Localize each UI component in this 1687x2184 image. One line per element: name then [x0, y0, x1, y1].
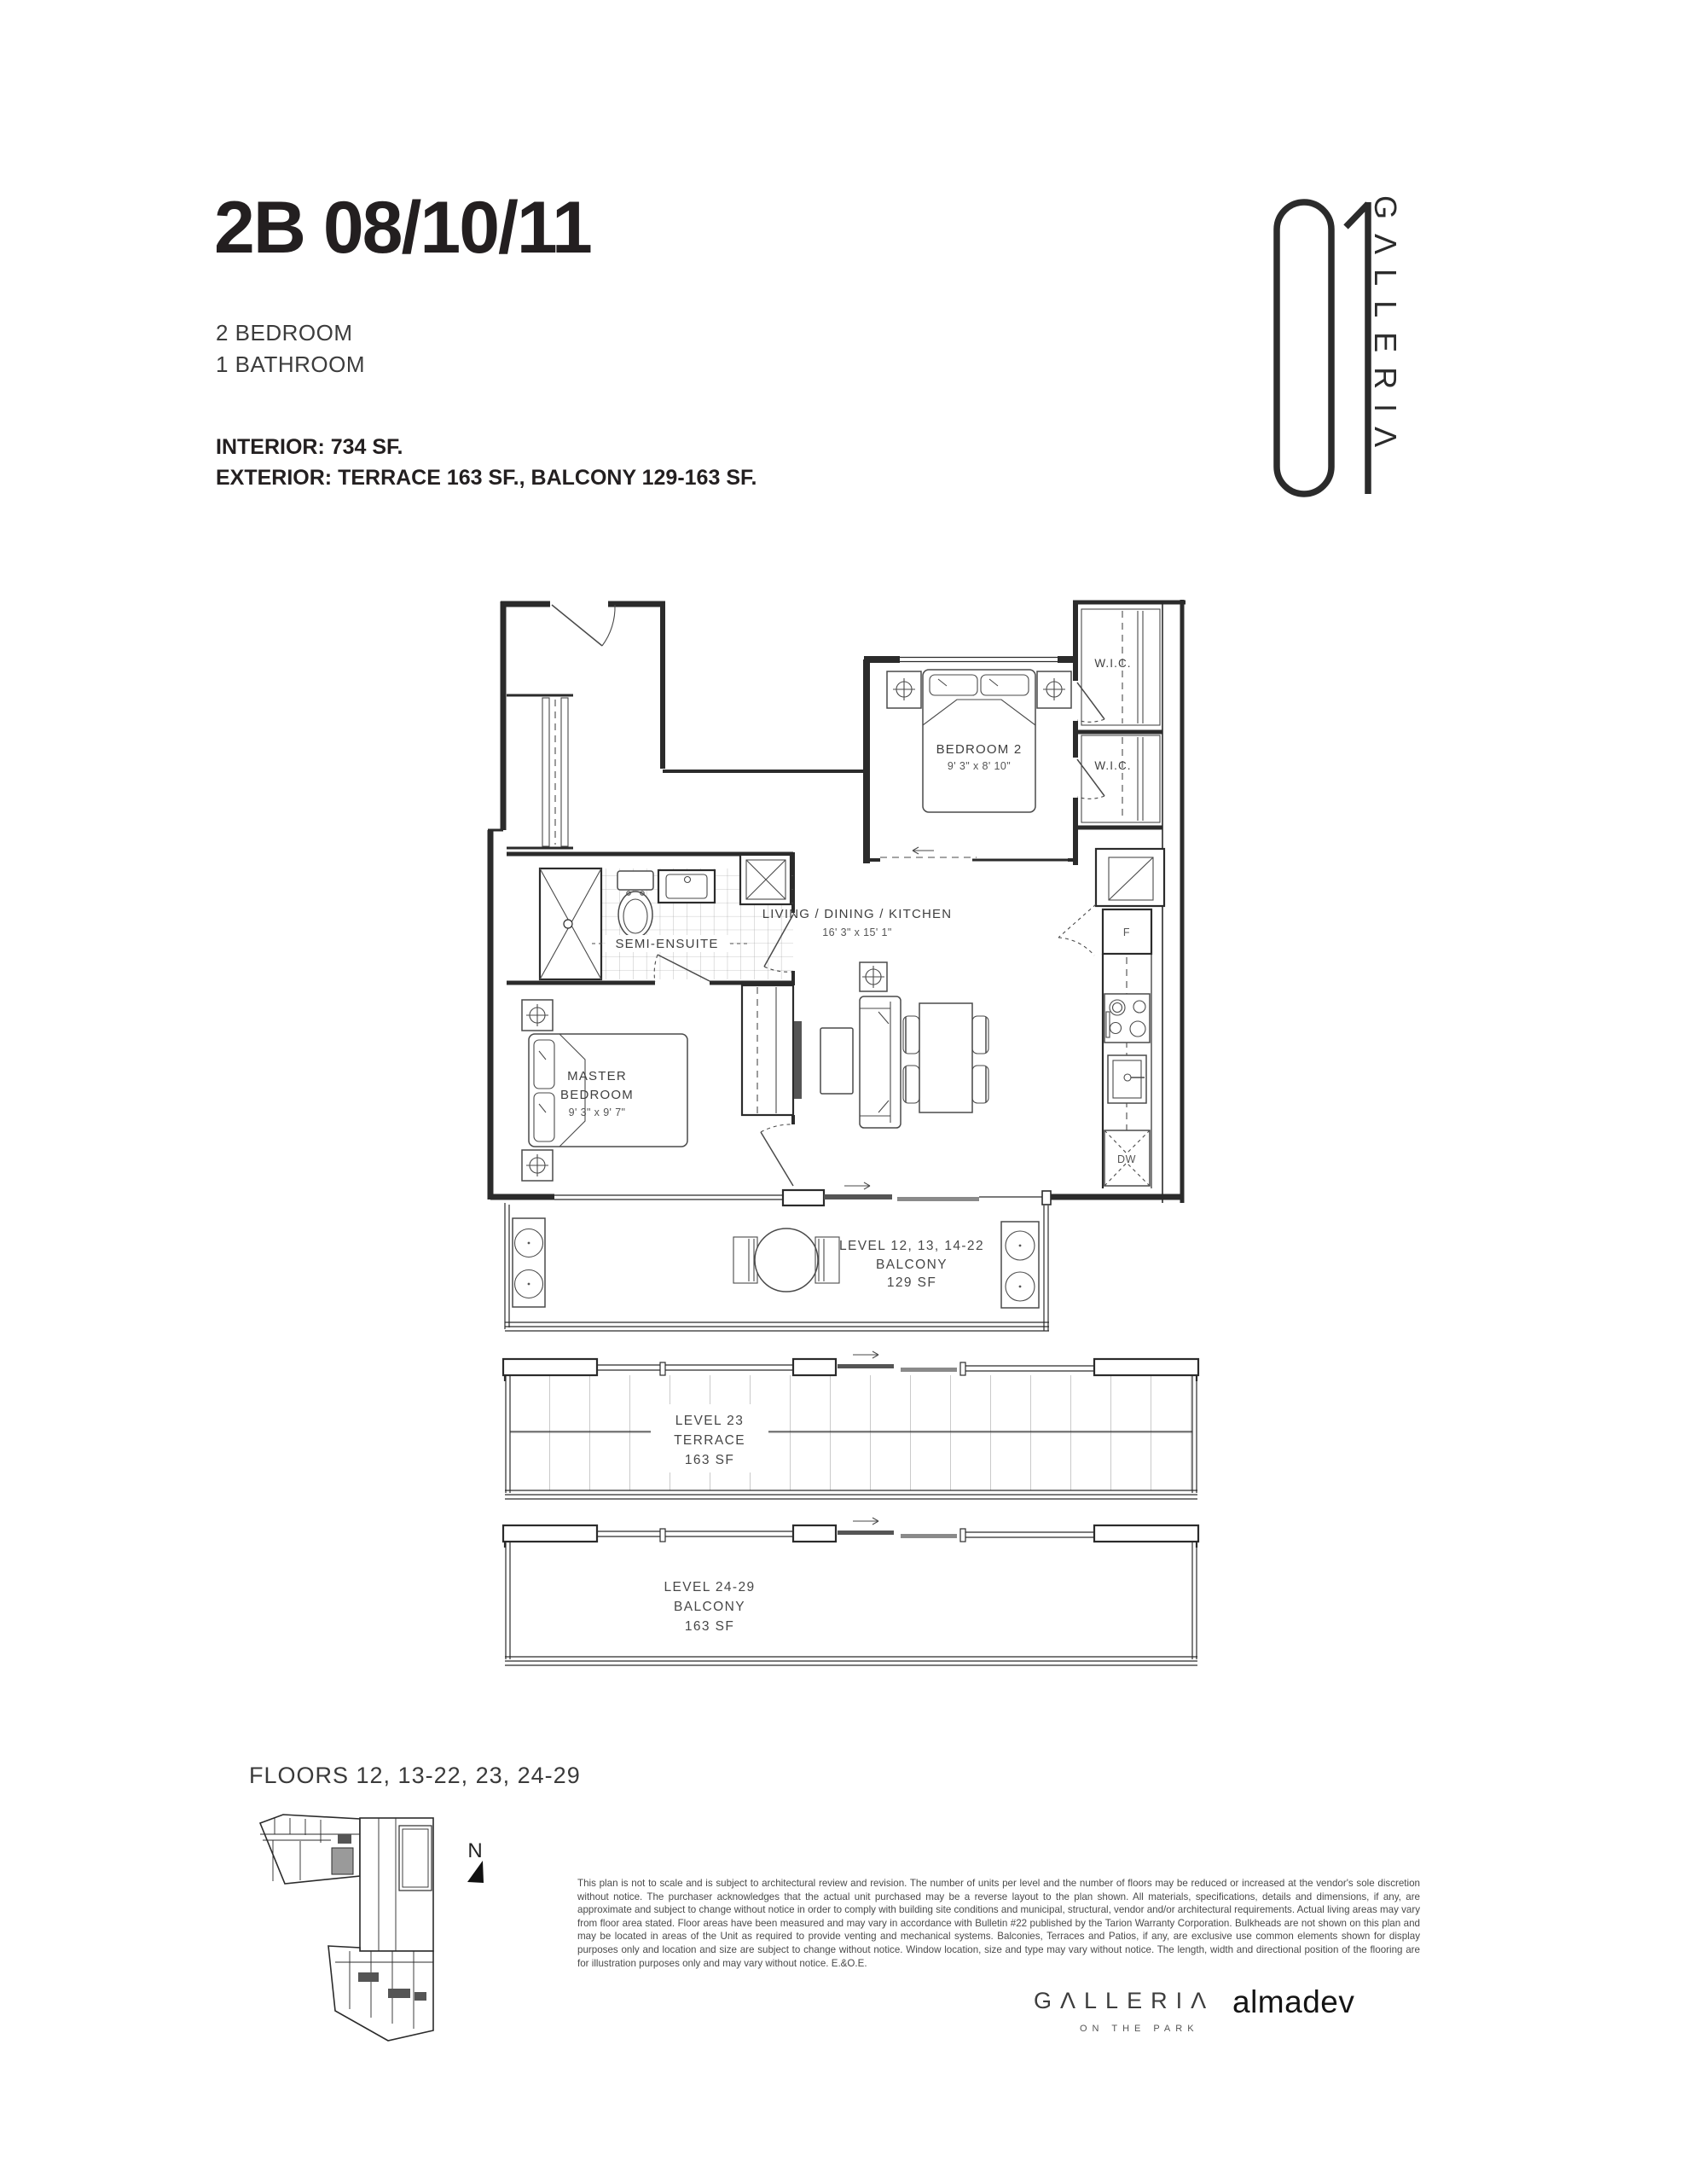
coffee-table — [820, 1028, 853, 1094]
wic-lower-label: W.I.C. — [1094, 759, 1131, 772]
bedroom2-bed — [923, 670, 1035, 812]
kitchen-sink — [1108, 1055, 1146, 1103]
south-window-wall — [490, 1182, 1184, 1205]
dining-set — [903, 1003, 988, 1112]
living-dims: 16' 3" x 15' 1" — [822, 926, 892, 938]
fridge: F — [1103, 909, 1151, 954]
bedroom2-sliding-door — [880, 847, 1068, 860]
planter-left — [513, 1218, 545, 1307]
toilet — [617, 871, 653, 938]
floors-label: FLOORS 12, 13-22, 23, 24-29 — [249, 1763, 581, 1789]
footer-galleria-logo: GΛLLERIΛ — [1034, 1988, 1215, 2014]
footer-developer-logo: almadev — [1232, 1984, 1354, 2020]
unit-summary: 2 BEDROOM 1 BATHROOM — [216, 317, 365, 380]
living-label: LIVING / DINING / KITCHEN — [762, 907, 953, 921]
bedroom-2: BEDROOM 2 9' 3" x 8' 10" — [880, 670, 1071, 860]
north-arrow: N — [467, 1839, 484, 1883]
balcony-24-29: LEVEL 24-29 BALCONY 163 SF — [503, 1518, 1198, 1665]
interior-area: INTERIOR: 734 SF. — [216, 432, 757, 462]
north-arrow-pointer — [467, 1861, 484, 1883]
door-slide-arrow — [844, 1182, 870, 1189]
balcony-12-22: LEVEL 12, 13, 14-22 BALCONY 129 SF — [505, 1203, 1049, 1331]
area-summary: INTERIOR: 734 SF. EXTERIOR: TERRACE 163 … — [216, 432, 757, 493]
entry-door — [552, 605, 615, 646]
keyplan: N — [243, 1804, 499, 2052]
tv — [794, 1021, 802, 1099]
master-wardrobe — [742, 985, 793, 1115]
floorplan: SEMI-ENSUITE — [478, 580, 1228, 1681]
keyplan-building-outline — [260, 1815, 433, 2041]
balcony-table-set — [733, 1228, 839, 1292]
walk-in-closets: W.I.C. W.I.C. — [1077, 609, 1160, 822]
master-nightstands — [522, 1000, 553, 1181]
vanity-sink — [658, 870, 715, 903]
shower — [540, 868, 601, 979]
disclaimer-text: This plan is not to scale and is subject… — [577, 1877, 1420, 1970]
semi-ensuite-label: SEMI-ENSUITE — [615, 937, 718, 951]
bedroom2-label: BEDROOM 2 — [936, 742, 1023, 757]
balcony24-label-3: 163 SF — [685, 1619, 734, 1634]
laundry-closet — [740, 855, 791, 904]
logo-digit-one — [1346, 202, 1368, 494]
bedroom2-nightstands — [887, 671, 1071, 708]
master-bedroom: MASTER BEDROOM 9' 3" x 9' 7" — [522, 985, 793, 1186]
side-table — [860, 962, 887, 991]
terrace-23: LEVEL 23 TERRACE 163 SF — [503, 1351, 1198, 1499]
kitchen: F DW — [1058, 849, 1164, 1188]
fridge-label: F — [1123, 926, 1130, 938]
master-label-1: MASTER — [567, 1069, 627, 1083]
keyplan-unit-highlight — [332, 1848, 353, 1874]
bedroom2-dims: 9' 3" x 8' 10" — [948, 760, 1011, 772]
footer-tagline: ON THE PARK — [1080, 2024, 1199, 2034]
master-door — [761, 1124, 793, 1186]
balcony24-label-2: BALCONY — [674, 1600, 745, 1614]
foyer-closet — [507, 695, 573, 848]
bedroom-count: 2 BEDROOM — [216, 317, 365, 349]
balcony12-label-3: 129 SF — [887, 1275, 936, 1290]
sofa — [860, 996, 901, 1128]
dishwasher: DW — [1104, 1130, 1150, 1186]
north-label: N — [467, 1839, 482, 1862]
exterior-area: EXTERIOR: TERRACE 163 SF., BALCONY 129-1… — [216, 462, 757, 493]
logo-galleria-vertical: GΛLLERIΛ — [1367, 195, 1403, 462]
unit-code-title: 2B 08/10/11 — [214, 186, 591, 270]
cooktop — [1104, 994, 1150, 1043]
terrace23-label-2: TERRACE — [674, 1433, 745, 1448]
living-dining: LIVING / DINING / KITCHEN 16' 3" x 15' 1… — [762, 907, 988, 1128]
balcony12-label-2: BALCONY — [876, 1258, 948, 1272]
master-dims: 9' 3" x 9' 7" — [569, 1107, 626, 1118]
balcony24-label-1: LEVEL 24-29 — [664, 1580, 755, 1594]
wic-upper-label: W.I.C. — [1094, 657, 1131, 670]
terrace-pavers — [510, 1375, 1192, 1490]
planter-right — [1001, 1222, 1039, 1308]
terrace23-label-3: 163 SF — [685, 1453, 734, 1467]
master-label-2: BEDROOM — [560, 1088, 634, 1102]
logo-digit-zero — [1277, 202, 1331, 494]
bathroom-count: 1 BATHROOM — [216, 349, 365, 380]
terrace23-label-1: LEVEL 23 — [675, 1414, 744, 1428]
dishwasher-label: DW — [1117, 1153, 1136, 1165]
balcony12-label-1: LEVEL 12, 13, 14-22 — [839, 1239, 984, 1253]
